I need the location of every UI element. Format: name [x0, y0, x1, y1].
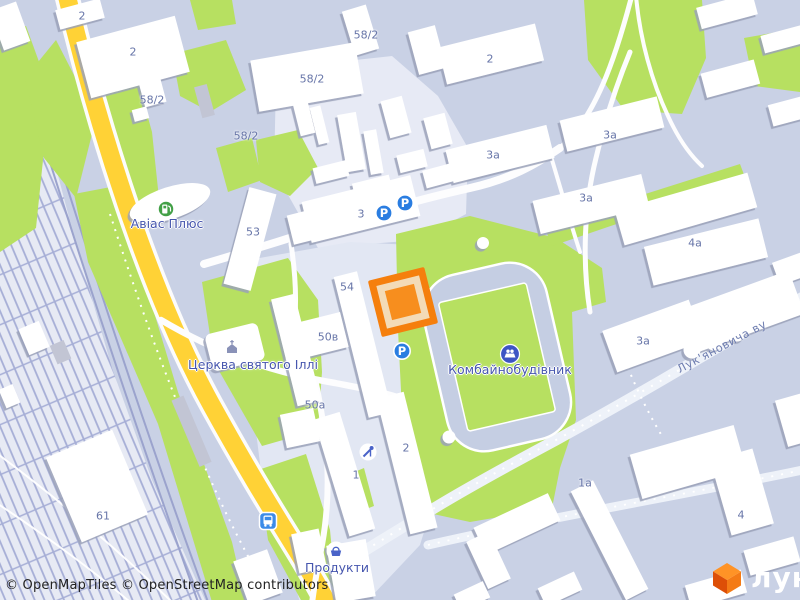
building-label: 58/2: [300, 74, 325, 85]
lun-logo-text: лун: [751, 564, 800, 592]
map-attribution[interactable]: © OpenMapTiles © OpenStreetMap contribut…: [5, 578, 329, 593]
poi-label-avias-plus: Авіас Плюс: [131, 218, 204, 231]
building-label: 53: [246, 227, 260, 238]
building-label: 2: [487, 54, 494, 65]
svg-text:P: P: [398, 344, 406, 358]
parking-icon: P: [394, 343, 410, 359]
building-label: 61: [96, 511, 110, 522]
building-label: 58/2: [234, 131, 259, 142]
building-label: 2: [79, 11, 86, 22]
parking-icon: P: [376, 205, 392, 221]
building-label: 3а: [579, 193, 593, 204]
building-label: 2: [130, 47, 137, 58]
building-label: 1: [353, 470, 360, 481]
map[interactable]: P P P: [0, 0, 800, 600]
building-label: 58/2: [354, 30, 379, 41]
fuel-station-icon: [158, 201, 174, 217]
building-label: 54: [340, 282, 354, 293]
poi-label-stadium: Комбайнобудівник: [448, 364, 572, 377]
bus-stop-icon: [260, 513, 277, 530]
poi-label-shop: Продукти: [305, 562, 369, 575]
building-label: 4: [738, 510, 745, 521]
sports-centre-icon: [501, 345, 520, 364]
map-tiles: P P P: [0, 0, 800, 600]
building-label: 58/2: [140, 95, 165, 106]
church-icon: [223, 339, 242, 358]
building-label: 3: [358, 209, 365, 220]
svg-text:P: P: [401, 196, 409, 210]
building-label: 1а: [578, 478, 592, 489]
building-label: 3а: [603, 130, 617, 141]
building-label: 50а: [305, 400, 326, 411]
building-label: 2: [403, 443, 410, 454]
svg-text:P: P: [380, 206, 388, 220]
parking-icon: P: [397, 195, 413, 211]
building-label: 4а: [688, 238, 702, 249]
playground-icon: [360, 444, 377, 461]
lun-cube-icon: [710, 561, 744, 595]
shop-basket-icon: [327, 542, 346, 561]
lun-logo[interactable]: лун: [710, 561, 800, 595]
building-label: 50в: [318, 332, 338, 343]
building-label: 3а: [486, 150, 500, 161]
poi-label-church: Церква святого Іллі: [188, 359, 318, 372]
building-label: 3а: [636, 336, 650, 347]
